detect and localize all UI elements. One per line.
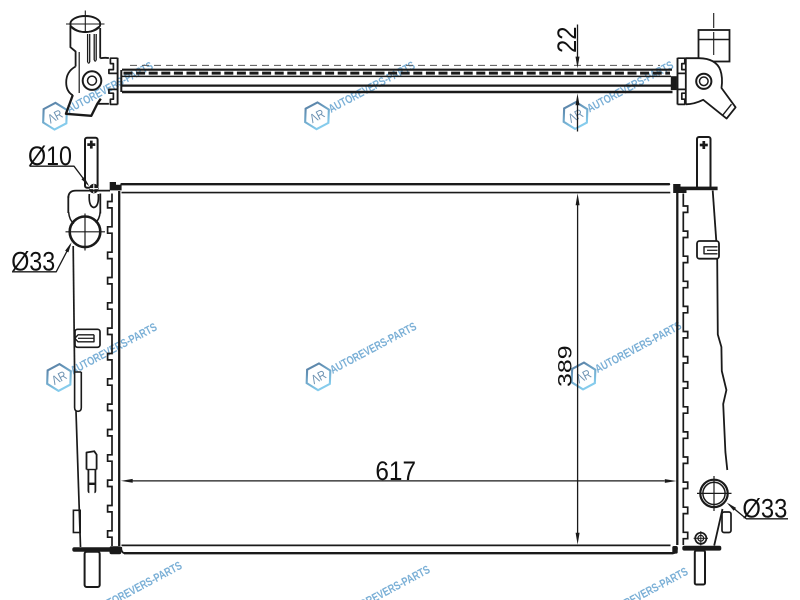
svg-text:389: 389 bbox=[555, 345, 577, 387]
svg-text:617: 617 bbox=[375, 456, 416, 486]
svg-text:22: 22 bbox=[552, 27, 582, 54]
